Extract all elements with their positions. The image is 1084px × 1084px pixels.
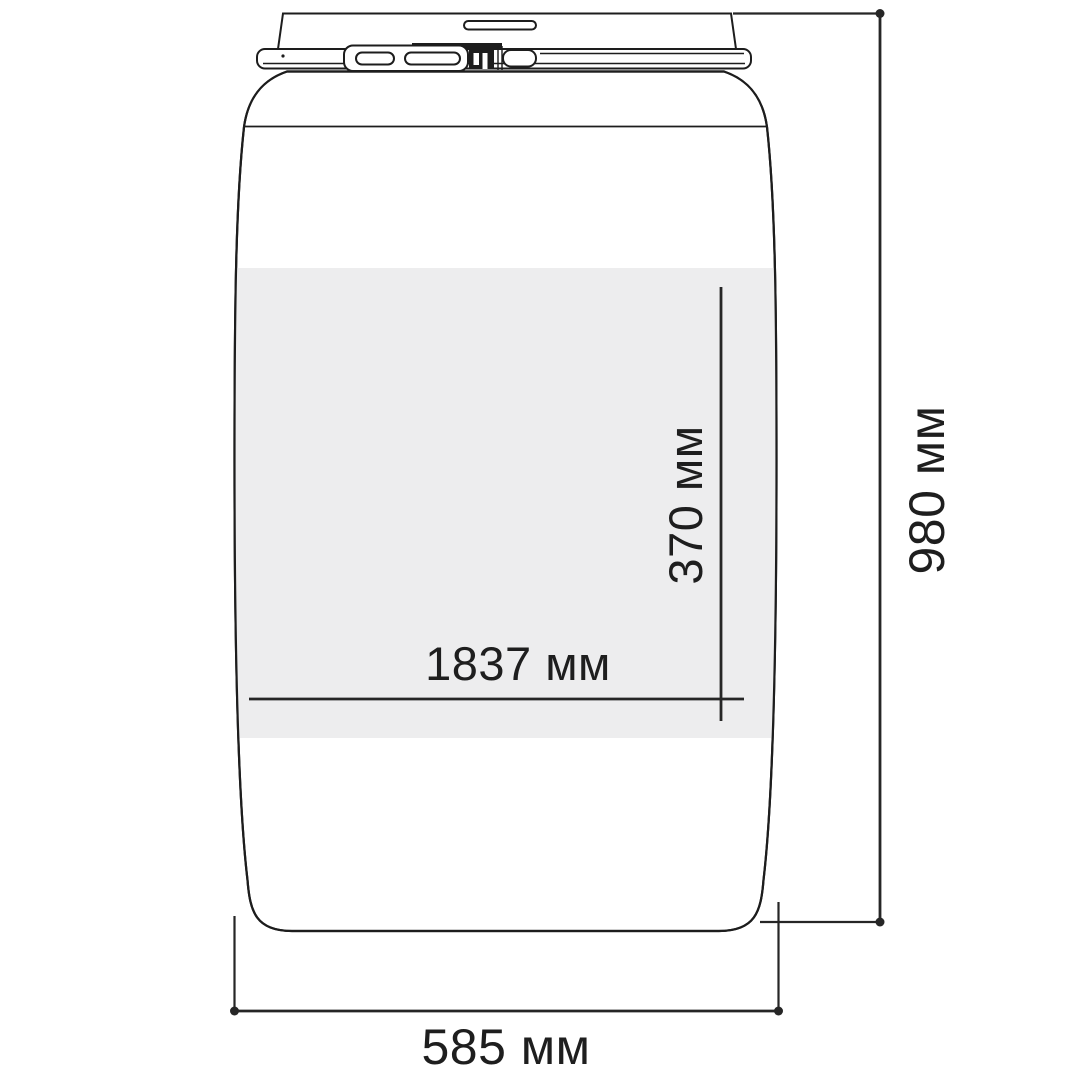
height-endpoint-bottom [876,918,885,927]
lid [278,14,736,50]
latch-slot-left [356,53,394,65]
diameter-endpoint-left [230,1007,239,1016]
latch-buckle [469,47,494,69]
diameter-value: 585 мм [421,1019,590,1075]
height-endpoint-top [876,9,885,18]
diagram-canvas: 1837 мм 370 мм 980 мм 585 мм [0,0,1084,1084]
latch-slot-right [405,53,460,65]
height-value: 980 мм [899,405,955,574]
latch-buckle-slit-right [483,53,488,69]
label-length-value: 1837 мм [425,637,611,690]
ring-rivet [281,54,284,57]
diameter-endpoint-right [774,1007,783,1016]
latch-tongue [503,50,536,67]
latch-buckle-slit-left [474,53,480,65]
drum-dimension-diagram: 1837 мм 370 мм 980 мм 585 мм [0,0,1084,1084]
clamp-ring [257,46,751,72]
lid-handle-tab [464,21,536,30]
label-height-value: 370 мм [659,425,712,584]
barrel-drawing [200,14,880,932]
